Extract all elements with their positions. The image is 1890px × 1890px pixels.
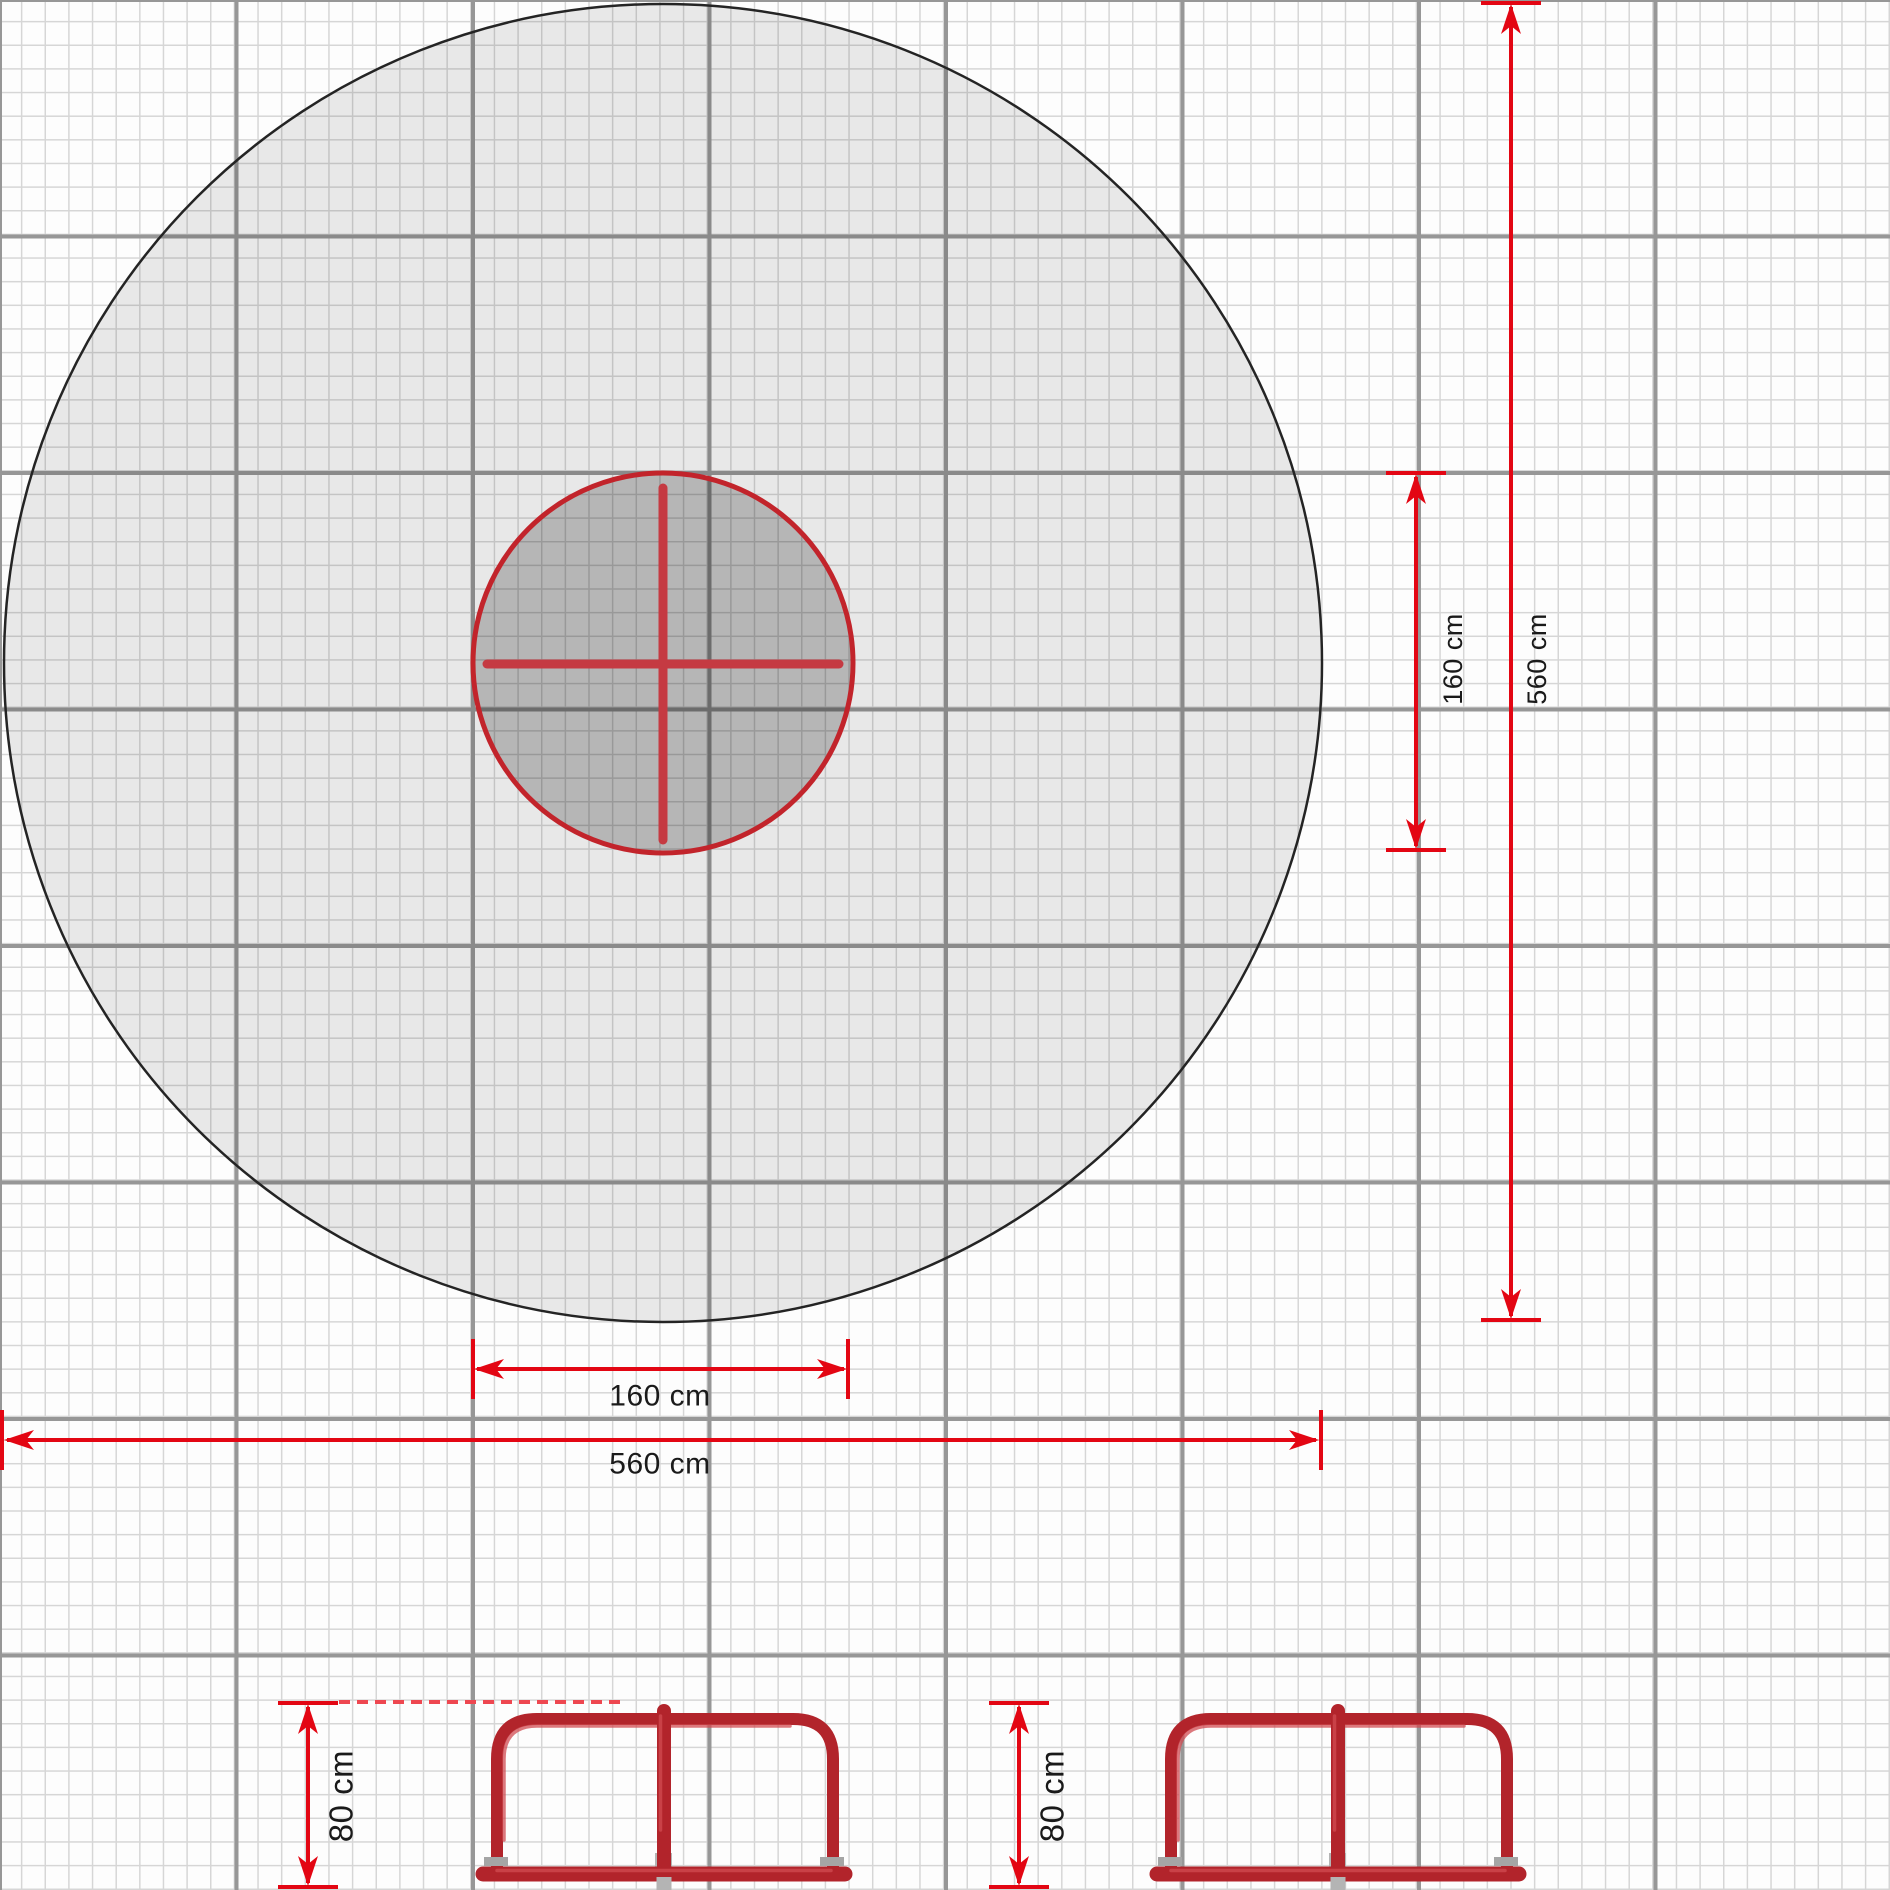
carousel-installation-drawing: 160 cm 560 cm 160 cm 560 cm — [0, 0, 1890, 1890]
handrail-highlight — [1178, 1726, 1464, 1840]
dimension-platform-vertical: 160 cm — [1386, 473, 1468, 850]
ground-anchor — [1331, 1877, 1346, 1890]
carousel-structure-left — [483, 1711, 845, 1890]
foot-plate-left — [1158, 1857, 1182, 1866]
dimension-zone-vertical: 560 cm — [1481, 3, 1552, 1320]
dimension-zone-horizontal: 560 cm — [2, 1410, 1321, 1481]
ground-anchor — [657, 1877, 672, 1890]
dimension-label-platform-vertical: 160 cm — [1438, 613, 1468, 705]
foot-plate-right — [1494, 1857, 1518, 1866]
dimension-label-height-left: 80 cm — [323, 1750, 360, 1842]
dimension-platform-horizontal: 160 cm — [473, 1339, 848, 1413]
foot-plate-right — [820, 1857, 844, 1866]
dimension-label-zone-vertical: 560 cm — [1522, 613, 1552, 705]
dimension-height-left: 80 cm — [278, 1703, 360, 1887]
side-view-right: 80 cm — [989, 1703, 1519, 1890]
dimension-label-zone-horizontal: 560 cm — [609, 1448, 710, 1481]
carousel-structure-right — [1157, 1711, 1519, 1890]
handrail-highlight — [504, 1726, 790, 1840]
dimension-height-right: 80 cm — [989, 1703, 1071, 1887]
dimension-label-platform-horizontal: 160 cm — [609, 1380, 710, 1413]
foot-plate-left — [484, 1857, 508, 1866]
drawing-canvas: 160 cm 560 cm 160 cm 560 cm — [0, 0, 1890, 1890]
side-view-left: 80 cm — [278, 1702, 845, 1890]
dimension-label-height-right: 80 cm — [1034, 1750, 1071, 1842]
